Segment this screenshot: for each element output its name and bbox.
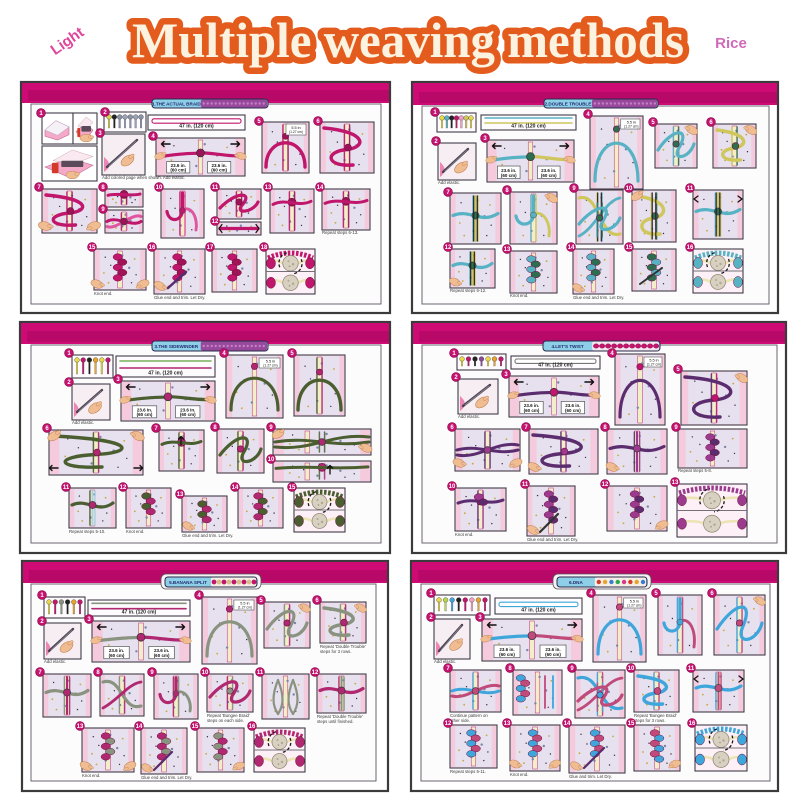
svg-text:14: 14 (564, 721, 571, 727)
svg-text:11: 11 (522, 482, 529, 488)
svg-text:Glue end and trim. Let Dry.: Glue end and trim. Let Dry. (182, 533, 233, 538)
svg-text:16: 16 (249, 724, 256, 730)
svg-text:(60 cm): (60 cm) (170, 167, 186, 172)
svg-text:14: 14 (136, 724, 143, 730)
svg-text:15: 15 (628, 721, 635, 727)
svg-text:Glue end and trim. Let Dry.: Glue end and trim. Let Dry. (141, 775, 192, 780)
svg-text:15: 15 (192, 724, 199, 730)
svg-text:(60 cm): (60 cm) (180, 412, 196, 417)
svg-text:4.LET'S TWIST: 4.LET'S TWIST (551, 344, 583, 349)
svg-text:10: 10 (628, 666, 635, 672)
svg-text:(1.27 cm): (1.27 cm) (238, 606, 252, 610)
svg-text:(60 cm): (60 cm) (545, 652, 561, 657)
svg-text:(60 cm): (60 cm) (137, 412, 153, 417)
svg-text:18: 18 (261, 245, 268, 251)
svg-text:12: 12 (312, 670, 319, 676)
svg-text:14: 14 (317, 185, 324, 191)
svg-text:Multiple weaving methods: Multiple weaving methods (132, 12, 684, 68)
svg-text:16: 16 (687, 245, 694, 251)
svg-text:Knot end.: Knot end. (94, 291, 112, 296)
svg-text:10: 10 (449, 484, 456, 490)
svg-text:(1.27 cm): (1.27 cm) (627, 604, 641, 608)
svg-text:2.DOUBLE TROUBLE: 2.DOUBLE TROUBLE (545, 102, 592, 107)
svg-text:(60 cm): (60 cm) (154, 653, 170, 658)
svg-text:12: 12 (445, 721, 452, 727)
svg-text:Glue end and trim. Let Dry.: Glue end and trim. Let Dry. (527, 537, 578, 542)
svg-text:Rice: Rice (715, 35, 747, 52)
svg-text:steps on each side.: steps on each side. (207, 718, 244, 723)
svg-text:15: 15 (289, 485, 296, 491)
svg-text:(60 cm): (60 cm) (501, 173, 517, 178)
svg-text:(60 cm): (60 cm) (565, 408, 581, 413)
svg-text:11: 11 (63, 485, 70, 491)
svg-text:13: 13 (504, 247, 511, 253)
svg-text:Knot end.: Knot end. (82, 773, 100, 778)
svg-text:11: 11 (687, 186, 694, 192)
svg-text:47 in. (120 cm): 47 in. (120 cm) (122, 610, 157, 616)
svg-text:3.THE SIDEWINDER: 3.THE SIDEWINDER (155, 344, 199, 349)
svg-text:(1.27 cm): (1.27 cm) (624, 125, 638, 129)
svg-text:Repeat steps 5-8.: Repeat steps 5-8. (678, 468, 712, 473)
svg-text:10: 10 (202, 670, 209, 676)
svg-text:(60 cm): (60 cm) (499, 652, 515, 657)
svg-text:Glue end and trim. Let Dry.: Glue end and trim. Let Dry. (154, 295, 205, 300)
svg-text:(60 cm): (60 cm) (524, 408, 540, 413)
svg-text:6.DNA: 6.DNA (569, 580, 583, 585)
svg-text:(1.27 cm): (1.27 cm) (263, 364, 277, 368)
svg-text:12: 12 (445, 245, 452, 251)
svg-text:11: 11 (257, 670, 264, 676)
svg-text:Add elastic.: Add elastic. (458, 414, 480, 419)
svg-text:10: 10 (156, 185, 163, 191)
svg-text:16: 16 (149, 245, 156, 251)
svg-text:other side.: other side. (450, 718, 470, 723)
svg-text:10: 10 (626, 186, 633, 192)
svg-text:13: 13 (177, 492, 184, 498)
svg-text:(60 cm): (60 cm) (541, 173, 557, 178)
svg-text:12: 12 (602, 482, 609, 488)
svg-text:11: 11 (688, 666, 695, 672)
svg-text:47 in. (120 cm): 47 in. (120 cm) (538, 363, 573, 369)
svg-text:13: 13 (672, 480, 679, 486)
svg-text:5.BANANA SPLIT: 5.BANANA SPLIT (169, 580, 207, 585)
svg-text:47 in. (120 cm): 47 in. (120 cm) (511, 124, 546, 130)
svg-text:47 in. (120 cm): 47 in. (120 cm) (521, 608, 556, 614)
svg-text:steps for 3 rows.: steps for 3 rows. (320, 649, 352, 654)
svg-text:(60 cm): (60 cm) (211, 167, 227, 172)
svg-text:Repeat steps 6-13.: Repeat steps 6-13. (322, 230, 358, 235)
svg-text:47 in. (120 cm): 47 in. (120 cm) (148, 371, 183, 377)
svg-text:(1.27 cm): (1.27 cm) (289, 130, 303, 134)
svg-text:(60 cm): (60 cm) (109, 653, 125, 658)
svg-text:10: 10 (268, 457, 275, 463)
svg-text:Add elastic.: Add elastic. (44, 659, 66, 664)
svg-text:steps until finished.: steps until finished. (317, 719, 354, 724)
svg-text:Knot end.: Knot end. (510, 772, 528, 777)
svg-text:Add elastic.: Add elastic. (434, 659, 456, 664)
svg-text:Repeat steps 5-11.: Repeat steps 5-11. (450, 769, 486, 774)
svg-text:12: 12 (120, 485, 127, 491)
svg-text:47 in. (120 cm): 47 in. (120 cm) (179, 124, 214, 130)
svg-text:Knot end.: Knot end. (126, 529, 144, 534)
svg-text:12: 12 (212, 219, 219, 225)
svg-text:11: 11 (212, 185, 219, 191)
svg-text:Knot end.: Knot end. (510, 293, 528, 298)
svg-text:1.THE ACTUAL BRAID: 1.THE ACTUAL BRAID (152, 102, 201, 107)
svg-text:Glue and trim. Let Dry.: Glue and trim. Let Dry. (569, 774, 612, 779)
svg-text:15: 15 (626, 245, 633, 251)
svg-text:Repeat steps 6-12.: Repeat steps 6-12. (450, 288, 486, 293)
svg-text:Knot end.: Knot end. (455, 532, 473, 537)
svg-text:13: 13 (77, 724, 84, 730)
svg-text:15: 15 (89, 245, 96, 251)
svg-text:Add elastic.: Add elastic. (438, 180, 460, 185)
svg-text:(1.27 cm): (1.27 cm) (647, 363, 661, 367)
svg-text:14: 14 (568, 245, 575, 251)
svg-text:Repeat steps 5-10.: Repeat steps 5-10. (69, 529, 105, 534)
svg-text:17: 17 (207, 245, 214, 251)
svg-text:13: 13 (504, 721, 511, 727)
svg-text:Glue end and trim. Let Dry.: Glue end and trim. Let Dry. (573, 295, 624, 300)
svg-text:Add elastic.: Add elastic. (72, 420, 94, 425)
svg-text:steps for 3 rows.: steps for 3 rows. (634, 718, 666, 723)
svg-text:16: 16 (689, 721, 696, 727)
svg-text:14: 14 (232, 485, 239, 491)
svg-text:13: 13 (265, 185, 272, 191)
